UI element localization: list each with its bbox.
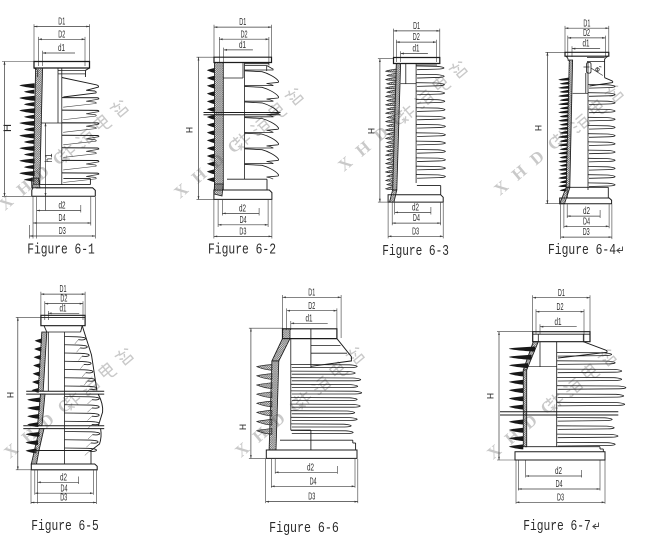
- svg-text:D3: D3: [412, 225, 419, 237]
- svg-text:D2: D2: [557, 301, 564, 313]
- svg-text:D3: D3: [308, 491, 315, 503]
- svg-text:Figure 6-7: Figure 6-7: [523, 518, 591, 535]
- svg-text:D3: D3: [583, 226, 590, 238]
- svg-text:d1: d1: [306, 312, 313, 324]
- svg-text:D1: D1: [239, 16, 246, 28]
- svg-text:D4: D4: [413, 212, 420, 224]
- svg-text:d1: d1: [413, 43, 420, 55]
- svg-text:d1: d1: [583, 38, 590, 50]
- svg-text:Figure 6-1: Figure 6-1: [27, 242, 95, 259]
- svg-text:D3: D3: [557, 491, 564, 503]
- svg-text:d2: d2: [59, 200, 66, 212]
- svg-text:d2: d2: [555, 465, 562, 477]
- svg-text:d1: d1: [555, 316, 562, 328]
- svg-text:H: H: [367, 128, 377, 134]
- svg-text:Figure 6-2: Figure 6-2: [208, 241, 276, 258]
- svg-text:D3: D3: [59, 225, 66, 237]
- svg-text:d2: d2: [307, 461, 314, 473]
- svg-text:D1: D1: [558, 287, 565, 299]
- svg-text:d1: d1: [239, 39, 246, 51]
- svg-text:D1: D1: [413, 20, 420, 32]
- svg-text:H: H: [486, 393, 496, 399]
- svg-text:D1: D1: [58, 16, 65, 28]
- svg-text:H: H: [6, 392, 16, 398]
- svg-text:D3: D3: [60, 492, 67, 504]
- svg-text:Figure 6-6: Figure 6-6: [269, 520, 339, 537]
- svg-text:D2: D2: [308, 300, 315, 312]
- svg-text:Figure 6-5: Figure 6-5: [31, 518, 98, 535]
- svg-text:D4: D4: [240, 214, 247, 226]
- svg-text:H: H: [534, 125, 544, 131]
- svg-text:D4: D4: [310, 475, 317, 487]
- svg-text:d2: d2: [239, 203, 246, 215]
- svg-text:D4: D4: [556, 478, 563, 490]
- svg-text:h1: h1: [44, 153, 55, 162]
- svg-text:Figure 6-4: Figure 6-4: [548, 242, 616, 259]
- svg-text:Figure 6-3: Figure 6-3: [382, 243, 449, 260]
- svg-text:H: H: [185, 127, 195, 133]
- svg-text:d1: d1: [58, 42, 65, 54]
- svg-text:H: H: [2, 124, 14, 132]
- svg-text:d1: d1: [60, 302, 67, 314]
- svg-text:D4: D4: [59, 212, 66, 224]
- svg-text:D2: D2: [58, 28, 65, 40]
- svg-text:D2: D2: [413, 31, 420, 43]
- svg-text:D1: D1: [308, 286, 315, 298]
- svg-text:D3: D3: [239, 226, 246, 238]
- svg-text:H: H: [238, 424, 248, 430]
